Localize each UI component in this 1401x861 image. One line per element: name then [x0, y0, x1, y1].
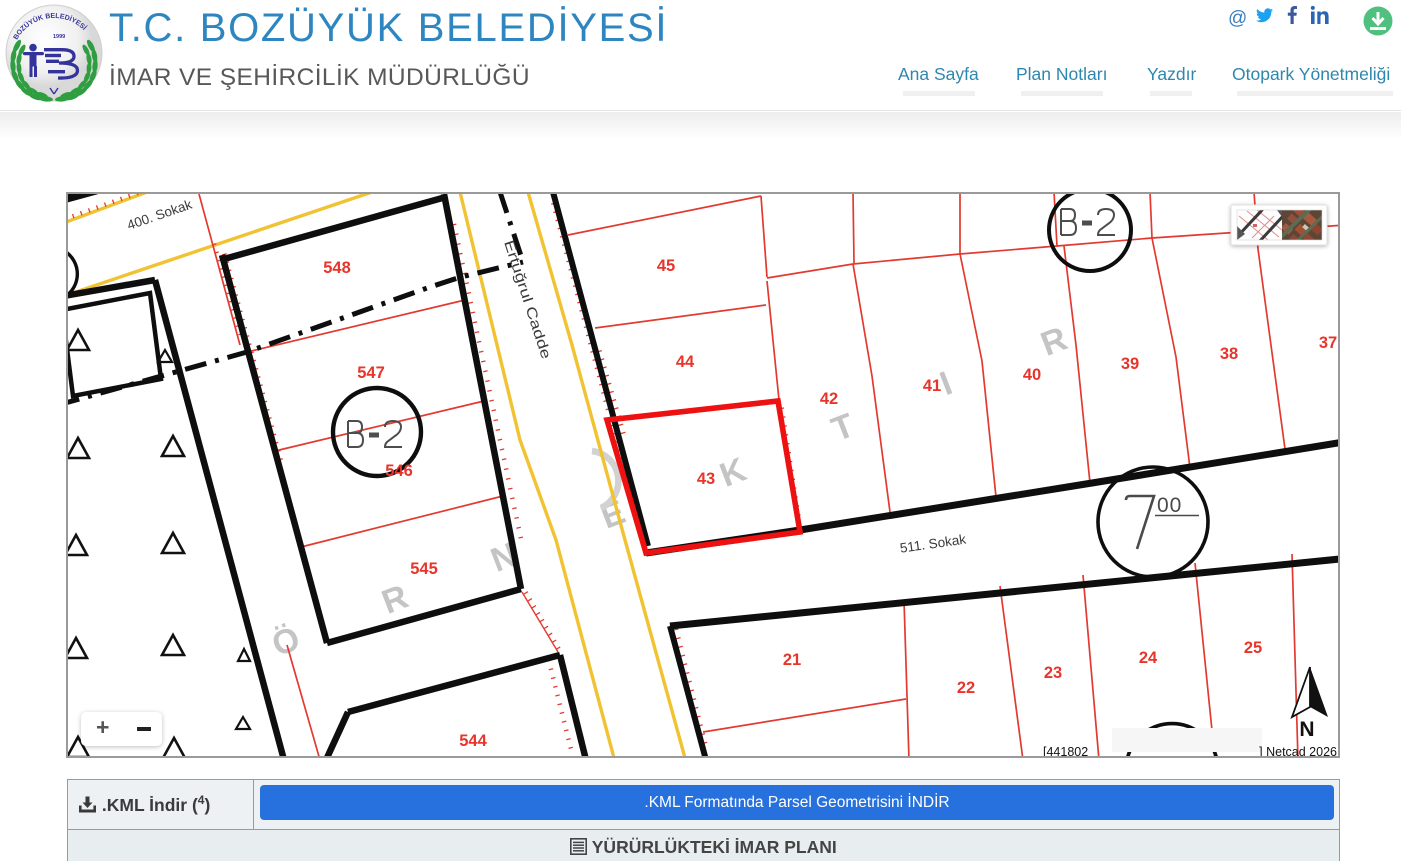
svg-text:43: 43 — [697, 470, 715, 488]
svg-text:41: 41 — [923, 377, 941, 395]
svg-text:23: 23 — [1044, 664, 1062, 682]
svg-text:42: 42 — [820, 390, 838, 408]
svg-text:1999: 1999 — [53, 34, 65, 40]
svg-text:545: 545 — [410, 560, 438, 578]
svg-text:@: @ — [1228, 8, 1247, 29]
svg-text:400. Sokak: 400. Sokak — [125, 197, 194, 233]
svg-text:544: 544 — [459, 732, 487, 750]
svg-text:40: 40 — [1023, 366, 1041, 384]
svg-text:22: 22 — [957, 679, 975, 697]
svg-text:00: 00 — [1157, 494, 1182, 517]
svg-text:K: K — [715, 450, 752, 494]
svg-text:45: 45 — [657, 257, 675, 275]
svg-text:Ö: Ö — [267, 619, 305, 664]
svg-text:24: 24 — [1139, 649, 1158, 667]
svg-text:548: 548 — [323, 259, 351, 277]
svg-text:[441802: [441802 — [1043, 745, 1088, 756]
svg-text:37: 37 — [1319, 334, 1337, 352]
svg-text:38: 38 — [1220, 345, 1238, 363]
svg-text:] Netcad 2026: ] Netcad 2026 — [1259, 745, 1337, 756]
svg-text:511. Sokak: 511. Sokak — [899, 532, 967, 556]
svg-text:44: 44 — [676, 353, 695, 371]
svg-text:25: 25 — [1244, 639, 1262, 657]
svg-text:R: R — [1036, 320, 1073, 364]
svg-text:R: R — [377, 578, 414, 622]
svg-text:T: T — [827, 406, 860, 449]
svg-text:547: 547 — [357, 364, 385, 382]
svg-text:546: 546 — [385, 462, 413, 480]
svg-text:21: 21 — [783, 651, 801, 669]
svg-text:N: N — [1299, 718, 1314, 741]
svg-text:39: 39 — [1121, 355, 1139, 373]
